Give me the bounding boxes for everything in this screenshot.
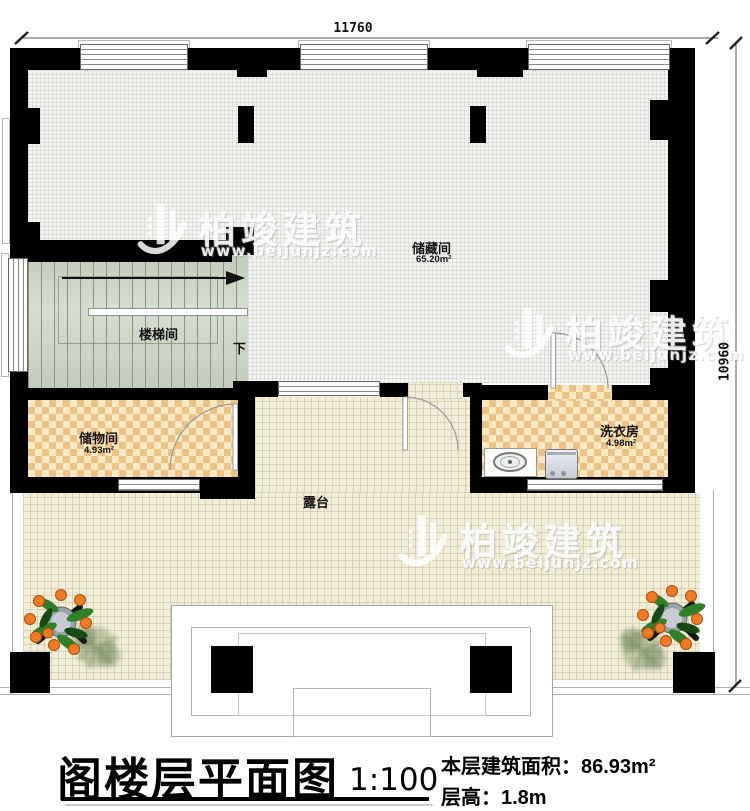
- stair-handrail: [88, 308, 248, 316]
- room-area-storeroom: 4.93m²: [84, 445, 114, 456]
- floor-area-label: 本层建筑面积：: [441, 756, 581, 778]
- floor-area-value: 86.93m²: [581, 756, 656, 778]
- terrace-corridor-floor: [255, 397, 470, 493]
- laundry-window: [527, 479, 663, 491]
- right-wall: [668, 48, 695, 490]
- porch-column: [470, 646, 512, 693]
- mid-wall-window: [278, 381, 380, 396]
- washing-machine-panel: [547, 452, 576, 455]
- floor-height-value: 1.8m: [501, 787, 547, 809]
- laundry-top-wall: [612, 385, 668, 400]
- terrace-door-gap-floor: [408, 383, 463, 399]
- brand-logo-icon: [135, 198, 189, 262]
- watermark-url: www.beijunjz.com: [201, 242, 378, 260]
- wall-pilaster: [650, 100, 668, 140]
- potted-plant-right: [608, 582, 718, 682]
- wall-pilaster: [200, 477, 255, 499]
- porch-column: [211, 646, 253, 693]
- title-underline: [61, 797, 429, 801]
- interior-column: [470, 106, 486, 143]
- wall-pilaster: [28, 108, 40, 144]
- dim-right-label: 10960: [718, 322, 733, 402]
- laundry-top-wall: [482, 385, 548, 400]
- room-label-terrace: 露台: [303, 492, 329, 511]
- window: [300, 44, 428, 70]
- stairwell-window: [8, 258, 28, 372]
- laundry-door-gap-floor: [548, 385, 612, 401]
- floor-area-text: 本层建筑面积：86.93m²: [441, 750, 656, 779]
- dim-top-label: 11760: [313, 21, 393, 36]
- room-area-storage: 65.20m²: [416, 254, 451, 265]
- drawing-scale: 1:100: [349, 762, 438, 798]
- washing-machine-knob: [561, 471, 566, 476]
- stair-down-label: 下: [233, 338, 246, 357]
- storeroom-floor: [28, 400, 238, 477]
- mid-wall-segment: [380, 383, 408, 397]
- sink-drain: [508, 460, 512, 464]
- window: [528, 44, 670, 70]
- brand-logo-icon: [502, 302, 556, 366]
- wall-pilaster: [237, 70, 267, 77]
- washing-machine-knob: [550, 471, 555, 476]
- window: [80, 44, 188, 70]
- title-underline-shadow: [65, 804, 433, 806]
- orange-tree-icon: [638, 586, 707, 650]
- room-area-laundry: 4.98m²: [606, 438, 636, 449]
- storeroom-window: [118, 479, 200, 491]
- floor-plan: 11760 10960 储藏间 65.20m² 楼梯间 下 储物间 4.93m²…: [0, 0, 750, 811]
- storeroom-top-wall: [10, 388, 255, 400]
- potted-plant-left: [18, 585, 128, 680]
- floor-height-text: 层高：1.8m: [441, 781, 547, 810]
- exterior-trim: [2, 118, 10, 244]
- wall-pilaster: [477, 70, 523, 77]
- interior-column: [238, 106, 254, 143]
- brand-logo-icon: [396, 510, 450, 574]
- floor-height-label: 层高：: [441, 787, 501, 809]
- porch-step-outline: [293, 688, 431, 737]
- watermark-url: www.beijunjz.com: [462, 554, 639, 572]
- room-label-stair: 楼梯间: [139, 324, 178, 343]
